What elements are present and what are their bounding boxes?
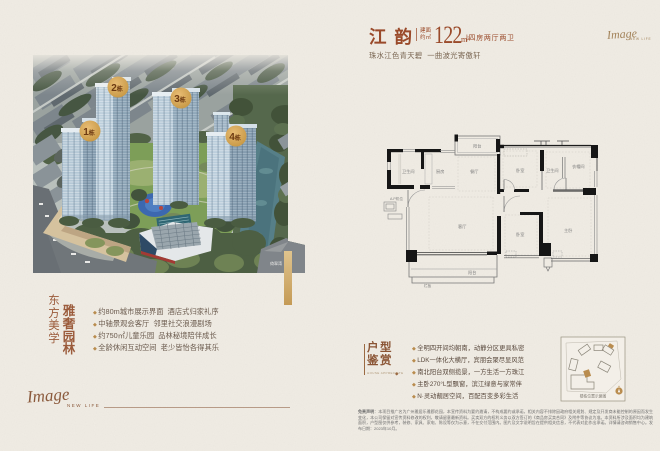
svg-text:餐厅: 餐厅	[470, 168, 478, 175]
svg-text:主卧: 主卧	[564, 227, 572, 234]
svg-text:卧室: 卧室	[516, 167, 524, 174]
svg-text:卧室: 卧室	[516, 231, 524, 238]
svg-text:阳台: 阳台	[473, 143, 481, 150]
svg-text:卫生间: 卫生间	[402, 168, 415, 175]
svg-text:栏板: 栏板	[424, 283, 432, 288]
svg-text:衣帽间: 衣帽间	[572, 163, 585, 170]
svg-text:A.P机位: A.P机位	[390, 196, 403, 201]
svg-text:阳台: 阳台	[468, 269, 476, 276]
svg-text:楼栋位置示意图: 楼栋位置示意图	[580, 394, 607, 399]
svg-text:客厅: 客厅	[458, 223, 466, 230]
svg-text:厨房: 厨房	[436, 168, 444, 175]
svg-text:卫生间: 卫生间	[546, 167, 559, 174]
svg-text:倚翠湾: 倚翠湾	[270, 260, 282, 266]
